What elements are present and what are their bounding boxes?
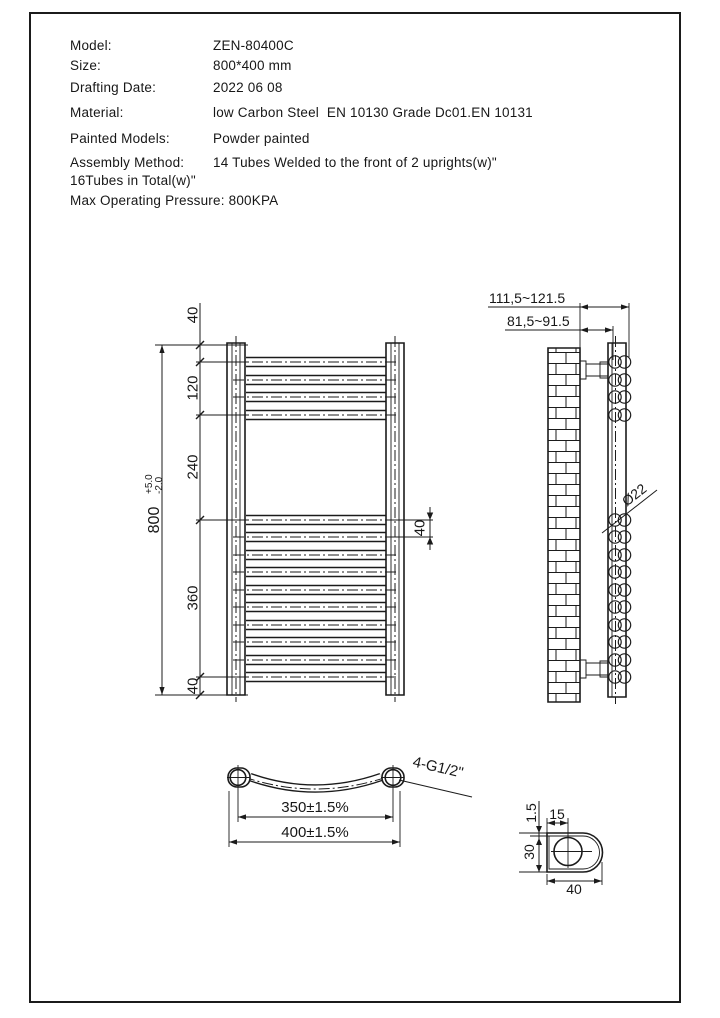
wall (548, 348, 580, 702)
tubes-front (233, 358, 399, 682)
dim-top-group-label: 120 (185, 375, 202, 400)
wall-bracket-top (580, 361, 609, 379)
dim-bottom-group-label: 360 (185, 585, 202, 610)
dim-centers-label: 350±1.5% (281, 799, 348, 816)
front-view: 800 +5.0 -2.0 40 120 240 360 40 40 (144, 303, 433, 702)
drawing-sheet: Model:ZEN-80400C Size:800*400 mm Draftin… (0, 0, 720, 1018)
side-view: 111,5~121.5 81,5~91.5 Ø22 (488, 290, 657, 704)
dim-middle-gap-label: 240 (185, 454, 202, 479)
dim-800-label: 800 (146, 507, 163, 534)
dim-bottom-gap-label: 40 (185, 678, 202, 695)
right-upright (386, 336, 404, 702)
right-connection (381, 765, 404, 790)
dim-overall-width-label: 400±1.5% (281, 824, 348, 841)
dim-800-tol-minus: -2.0 (154, 476, 165, 494)
bottom-view: 4-G1/2" 350±1.5% 400±1.5% (227, 754, 472, 847)
detail-view: 15 1.5 30 40 (519, 801, 603, 897)
dim-wall-to-tube-front-label: 111,5~121.5 (489, 290, 565, 306)
wall-bracket-bottom (580, 660, 609, 678)
dim-profile-width-label: 40 (566, 881, 582, 897)
dim-tube-pitch-label: 40 (412, 520, 429, 537)
connection-leader-line (399, 780, 472, 797)
left-connection (227, 765, 250, 790)
dim-hole-offset-label: 15 (549, 806, 565, 822)
technical-drawing: 800 +5.0 -2.0 40 120 240 360 40 40 (0, 0, 720, 1018)
dim-profile-height-label: 30 (521, 844, 537, 860)
dim-wall-thickness-label: 1.5 (523, 803, 539, 823)
connection-label: 4-G1/2" (411, 754, 465, 782)
dim-wall-to-upright-label: 81,5~91.5 (507, 313, 570, 329)
dim-top-gap-label: 40 (185, 307, 202, 324)
left-upright (227, 336, 245, 702)
